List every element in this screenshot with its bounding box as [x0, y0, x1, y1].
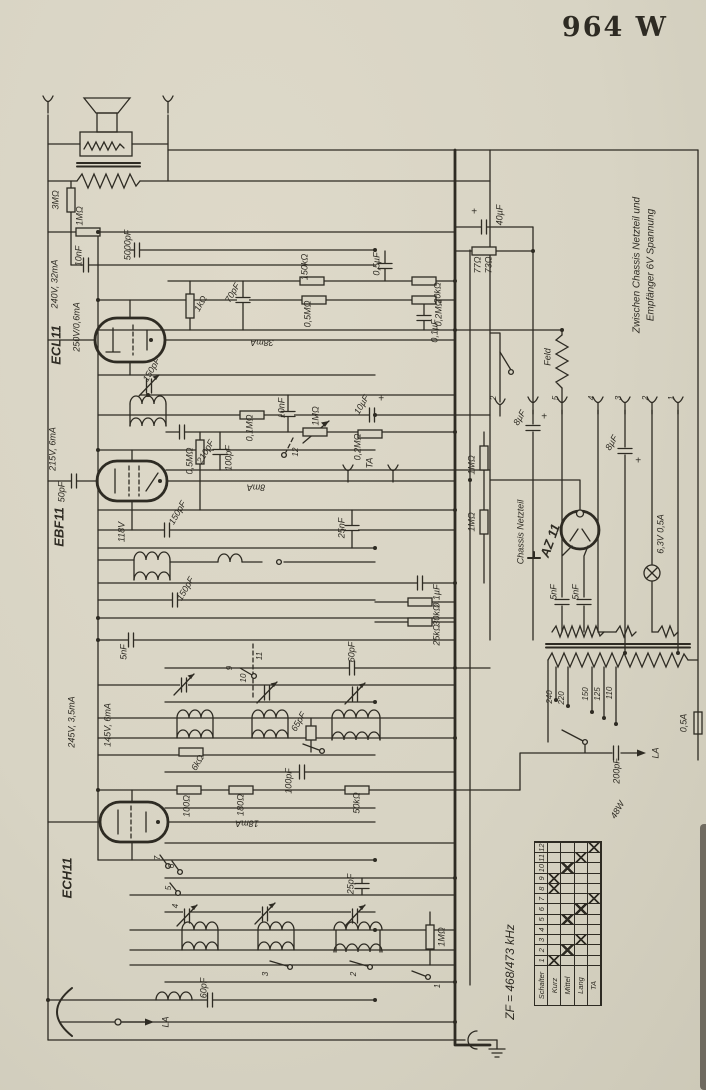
- label-0-1-F: 0,1µF: [429, 319, 439, 343]
- table-cell-Mittel-1: [561, 955, 574, 965]
- table-cell-Mittel-4: [561, 924, 574, 934]
- table-cell-TA-3: [588, 934, 601, 944]
- label-245V-3-5mA: 245V, 3,5mA: [66, 696, 76, 748]
- table-cell-Lang-10: [575, 863, 588, 873]
- label-9: 9: [225, 665, 234, 670]
- table-cell-Mittel-9: [561, 873, 574, 883]
- resistor-1M-osc: [426, 925, 434, 949]
- table-cell-Mittel-6: [561, 904, 574, 914]
- table-cell-Mittel-8: [561, 883, 574, 893]
- label-0-1-F: 0,1µF: [431, 584, 441, 608]
- label-11: 11: [255, 652, 264, 660]
- table-cell-Kurz-4: [548, 924, 561, 934]
- label-3M-: 3MΩ: [50, 190, 60, 210]
- table-cell-Lang-6: [575, 904, 588, 914]
- table-cell-Lang-5: [575, 914, 588, 924]
- label-0-5-F: 0,5µF: [371, 252, 381, 276]
- antenna-arrow-mains: [637, 750, 646, 757]
- table-col-12: 12: [535, 842, 548, 852]
- label-Zwischen-Chassis-Netzteil-und: Zwischen Chassis Netzteil und: [632, 196, 643, 334]
- label-150pF: 150pF: [167, 499, 189, 527]
- osc-coil-3: [332, 710, 380, 718]
- label-150pF: 150pF: [175, 575, 197, 603]
- label-100-: 100Ω: [181, 795, 191, 817]
- label-2: 2: [349, 971, 358, 977]
- ant-coil-1: [182, 922, 218, 930]
- resistor-30k: [408, 598, 432, 606]
- antenna-arrow-bottom: [115, 1019, 154, 1026]
- table-cell-Kurz-2: [548, 945, 561, 955]
- table-cell-Kurz-6: [548, 904, 561, 914]
- cap-0_1uF-2: [417, 576, 423, 590]
- label-2: 2: [489, 395, 498, 401]
- label-ZF-468-473-kHz: ZF = 468/473 kHz: [503, 924, 517, 1021]
- table-cell-Lang-3: [575, 934, 588, 944]
- tube-EBF11: [97, 461, 167, 501]
- label-TA: TA: [364, 458, 374, 469]
- label-EBF11: EBF11: [51, 507, 66, 547]
- table-cell-TA-12: [588, 842, 601, 852]
- table-col-8: 8: [535, 883, 548, 893]
- label-150k-: 150kΩ: [299, 254, 309, 281]
- label-1M-: 1MΩ: [310, 406, 320, 426]
- table-cell-Mittel-7: [561, 893, 574, 903]
- table-cell-TA-10: [588, 863, 601, 873]
- cap-210pF: [179, 425, 185, 439]
- table-col-4: 4: [535, 924, 548, 934]
- label-5: 5: [164, 885, 173, 890]
- table-cell-Kurz-9: [548, 873, 561, 883]
- pin-TA-1: [343, 465, 353, 482]
- label-8mA: 8mA: [247, 483, 266, 493]
- table-cell-TA-1: [588, 955, 601, 965]
- label-10nF: 10nF: [73, 245, 83, 266]
- label-1M-: 1MΩ: [466, 455, 476, 475]
- label--: +: [541, 412, 547, 423]
- label-220: 220: [557, 691, 566, 706]
- frame-antenna: [57, 988, 72, 1036]
- cap-150pF-2: [164, 523, 170, 537]
- table-cell-Kurz-10: [548, 863, 561, 873]
- label-Feld: Feld: [542, 347, 552, 366]
- label-1M-: 1MΩ: [74, 206, 84, 226]
- label-48W: 48W: [608, 798, 627, 820]
- label-40-F: 40µF: [494, 204, 504, 225]
- table-cell-Lang-8: [575, 883, 588, 893]
- label-100pF: 100pF: [283, 768, 293, 794]
- table-cell-Kurz-1: [548, 955, 561, 965]
- output-winding: [77, 174, 140, 188]
- label-145V-6mA: 145V, 6mA: [102, 703, 112, 747]
- label-1: 1: [433, 984, 442, 988]
- label-0-5M-: 0,5MΩ: [184, 447, 194, 474]
- cap-70pF: [236, 297, 250, 303]
- label-0-2M-: 0,2MΩ: [352, 433, 362, 460]
- tube-AZ11: [561, 510, 599, 549]
- volume-potentiometer-1M: [303, 428, 327, 436]
- page-edge-shadow: [700, 824, 706, 1090]
- label-25nF: 25nF: [336, 517, 346, 539]
- label-125: 125: [593, 687, 602, 701]
- table-cell-Lang-12: [575, 842, 588, 852]
- resistor-1M-bus1: [480, 446, 488, 470]
- cap-8uF-2: [618, 448, 632, 454]
- table-col-1: 1: [535, 955, 548, 965]
- label-7: 7: [153, 855, 162, 860]
- pin-TA-2: [388, 465, 398, 482]
- label-240V-32mA: 240V, 32mA: [49, 260, 59, 310]
- label-200pF: 200pF: [611, 758, 621, 785]
- cap-40uF: [481, 220, 487, 234]
- label-8-F: 8µF: [603, 433, 620, 452]
- table-col-5: 5: [535, 914, 548, 924]
- table-cell-Kurz-3: [548, 934, 561, 944]
- label-18mA: 18mA: [235, 819, 259, 829]
- resistor-77-73: [472, 247, 496, 255]
- label-100pF: 100pF: [223, 445, 233, 471]
- table-col-10: 10: [535, 863, 548, 873]
- label-150: 150: [581, 687, 590, 701]
- table-col-9: 9: [535, 873, 548, 883]
- cap-5000pF: [134, 243, 140, 257]
- label-ECL11: ECL11: [48, 325, 63, 365]
- label-150pF: 150pF: [141, 356, 163, 384]
- resistor-25k: [408, 618, 432, 626]
- table-col-7: 7: [535, 893, 548, 903]
- loudspeaker: [48, 98, 168, 156]
- label-4: 4: [171, 903, 180, 908]
- table-cell-Mittel-10: [561, 863, 574, 873]
- label-25pF: 25pF: [345, 873, 355, 895]
- label-77-: 77Ω: [472, 256, 482, 273]
- table-col-2: 2: [535, 945, 548, 955]
- label-30k-: 30kΩ: [431, 604, 441, 626]
- label-10-F: 10µF: [352, 393, 371, 416]
- if-transformer-2: [134, 552, 170, 560]
- ground-symbol: [489, 1040, 505, 1057]
- label-6-3V-0-5A: 6,3V 0,5A: [655, 514, 665, 554]
- la-coupling-coil: [156, 992, 192, 1000]
- band-switch-table: Schalter123456789101112KurzMittelLangTA: [534, 843, 600, 1006]
- label-0-5A: 0,5A: [678, 714, 688, 733]
- band-switch-grid: Schalter123456789101112KurzMittelLangTA: [534, 841, 602, 1006]
- label-0-5M-: 0,5MΩ: [302, 300, 312, 327]
- table-header-schalter: Schalter: [535, 965, 548, 1005]
- table-cell-Kurz-8: [548, 883, 561, 893]
- label--: +: [471, 207, 477, 218]
- table-cell-TA-4: [588, 924, 601, 934]
- label-1M-: 1MΩ: [466, 512, 476, 532]
- table-row-label-Lang: Lang: [575, 965, 588, 1005]
- ant-coil-2: [258, 922, 294, 930]
- primary-winding: [548, 653, 688, 667]
- label-6: 6: [167, 863, 176, 868]
- resistor-100: [177, 786, 201, 794]
- label-118V: 118V: [116, 521, 126, 542]
- table-cell-TA-9: [588, 873, 601, 883]
- label-60pF: 60pF: [198, 977, 208, 998]
- label-1: 1: [667, 396, 676, 400]
- cap-200pF: [613, 746, 619, 760]
- chassis-bus: [455, 150, 490, 1045]
- label-73-: 73Ω: [483, 256, 493, 273]
- mains-transformer: [546, 626, 690, 667]
- label-180-: 180Ω: [235, 794, 245, 816]
- table-cell-Lang-4: [575, 924, 588, 934]
- cap-8uF-1: [526, 425, 540, 431]
- label-5nF: 5nF: [118, 644, 128, 660]
- table-cell-Kurz-7: [548, 893, 561, 903]
- label-AZ-11: AZ 11: [537, 522, 563, 560]
- label-25k-: 25kΩ: [431, 624, 441, 647]
- label-38mA: 38mA: [250, 338, 274, 348]
- table-cell-Mittel-3: [561, 934, 574, 944]
- table-row-label-Kurz: Kurz: [548, 965, 561, 1005]
- pilot-lamp: [644, 565, 660, 581]
- label-60pF: 60pF: [346, 641, 356, 662]
- table-cell-TA-6: [588, 904, 601, 914]
- socket-pins: [43, 96, 683, 482]
- cap-65pF-padder: [306, 726, 316, 740]
- cap-25nF: [345, 525, 359, 531]
- label-Empfänger-6V-Spannung: Empfänger 6V Spannung: [646, 208, 657, 321]
- table-col-3: 3: [535, 934, 548, 944]
- label-250V-0-6mA: 250V/0,6mA: [71, 302, 81, 353]
- label-2: 2: [641, 395, 650, 401]
- transformer-core: [546, 644, 690, 648]
- cap-25pF: [355, 883, 369, 889]
- label-5: 5: [551, 395, 560, 400]
- voice-coil-resistor: [84, 142, 124, 150]
- output-transformer: [77, 163, 140, 188]
- label-4: 4: [587, 395, 596, 400]
- table-cell-Mittel-11: [561, 852, 574, 862]
- cap-10nF-1: [83, 258, 89, 272]
- label-50k-: 50kΩ: [351, 792, 361, 814]
- tube-ECH11: [100, 802, 168, 842]
- table-cell-Kurz-12: [548, 842, 561, 852]
- label--: +: [378, 394, 384, 405]
- field-coil-winding: [556, 335, 568, 388]
- label-5nF: 5nF: [548, 584, 558, 600]
- resistor-1M-bus2: [480, 510, 488, 534]
- cap-50pF: [71, 474, 77, 488]
- table-cell-TA-5: [588, 914, 601, 924]
- table-cell-Lang-9: [575, 873, 588, 883]
- label--: +: [635, 456, 641, 467]
- table-cell-Kurz-11: [548, 852, 561, 862]
- table-cell-Lang-7: [575, 893, 588, 903]
- table-row-label-TA: TA: [588, 965, 601, 1005]
- label-Chassis-Netzteil: Chassis Netzteil: [515, 499, 525, 565]
- resistor-180: [229, 786, 253, 794]
- osc-coil-2: [252, 710, 288, 718]
- label-12: 12: [291, 447, 300, 456]
- table-cell-TA-2: [588, 945, 601, 955]
- label-110: 110: [605, 686, 614, 699]
- if-transformer-1: [130, 396, 166, 404]
- label-5nF: 5nF: [570, 584, 580, 600]
- table-cell-Lang-11: [575, 852, 588, 862]
- cap-100pF-2: [299, 765, 305, 779]
- table-col-6: 6: [535, 904, 548, 914]
- label-3: 3: [261, 971, 270, 976]
- table-col-11: 11: [535, 852, 548, 862]
- label-10nF: 10nF: [276, 397, 286, 418]
- label-65pF: 65pF: [289, 710, 308, 733]
- osc-coil-1: [177, 710, 213, 718]
- label-50pF: 50pF: [56, 481, 66, 502]
- table-cell-Lang-1: [575, 955, 588, 965]
- table-cell-Lang-2: [575, 945, 588, 955]
- label-1M-: 1MΩ: [436, 927, 446, 947]
- label-LA: LA: [160, 1016, 170, 1027]
- table-cell-TA-11: [588, 852, 601, 862]
- coupling-coil: [218, 554, 242, 562]
- table-cell-Mittel-2: [561, 945, 574, 955]
- label-10: 10: [239, 673, 248, 682]
- table-row-label-Mittel: Mittel: [561, 965, 574, 1005]
- label-3: 3: [614, 395, 623, 400]
- label-5000pF: 5000pF: [122, 229, 132, 260]
- mains-fuse: [694, 712, 702, 734]
- table-cell-Kurz-5: [548, 914, 561, 924]
- label-240: 240: [545, 690, 554, 705]
- label-LA: LA: [650, 747, 660, 758]
- table-cell-Mittel-12: [561, 842, 574, 852]
- label-215V-6mA: 215V, 6mA: [47, 427, 57, 472]
- table-cell-Mittel-5: [561, 914, 574, 924]
- table-cell-TA-8: [588, 883, 601, 893]
- cap-5nF-chassis: [128, 633, 134, 647]
- table-cell-TA-7: [588, 893, 601, 903]
- label-ECH11: ECH11: [59, 858, 74, 899]
- label-8-F: 8µF: [511, 408, 528, 427]
- tube-ECL11: [95, 318, 165, 362]
- label-0-1M-: 0,1MΩ: [244, 414, 254, 441]
